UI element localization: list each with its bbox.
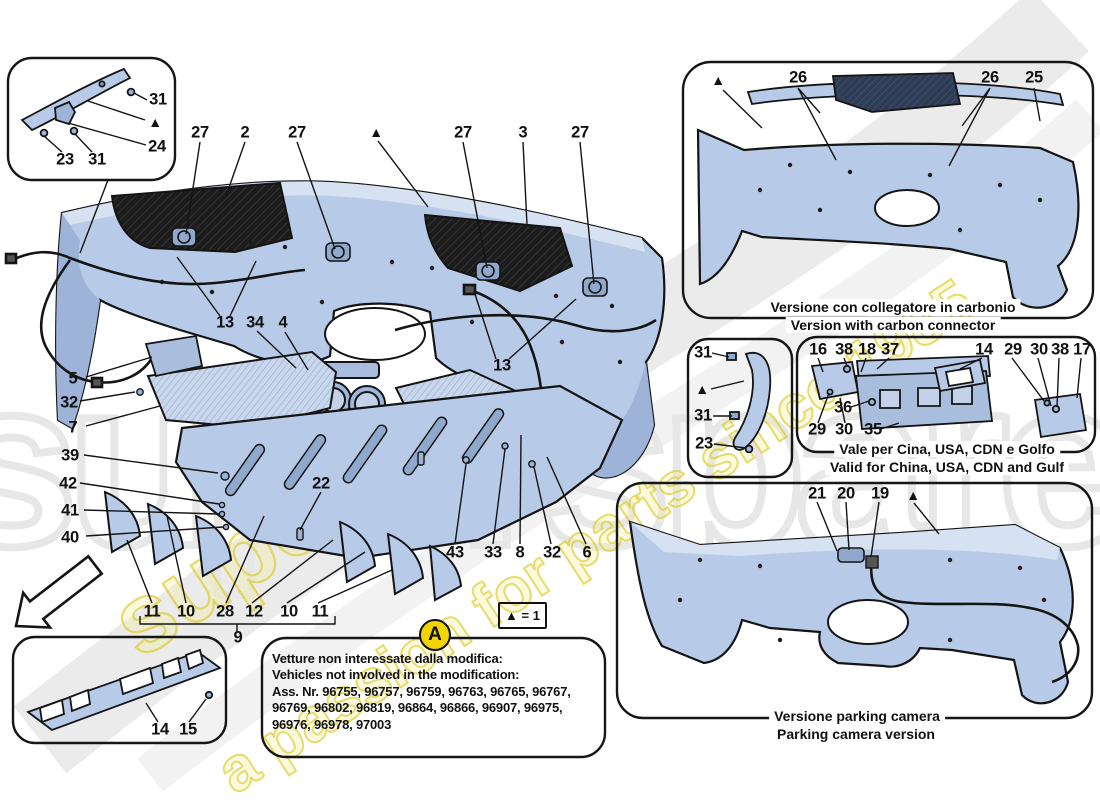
callout-label: 31	[694, 344, 712, 363]
callout-label: 42	[59, 475, 77, 494]
caption-parking-en: Parking camera version	[772, 726, 940, 742]
callout-label: 10	[280, 603, 298, 622]
callout-label: 16	[809, 341, 827, 360]
caption-carbon-it: Versione con collegatore in carbonio	[765, 299, 1020, 315]
grille-left	[112, 183, 292, 252]
callout-label: 36	[834, 399, 852, 418]
callout-label: 20	[837, 485, 855, 504]
parking-version-part	[630, 522, 1078, 703]
callout-label: 12	[245, 603, 263, 622]
callout-label: 23	[695, 435, 713, 454]
caption-parking-it: Versione parking camera	[769, 708, 945, 724]
note-line-en: Vehicles not involved in the modificatio…	[272, 667, 602, 683]
caption-gulf-en: Valid for China, USA, CDN and Gulf	[825, 459, 1069, 475]
callout-label: 29	[808, 421, 826, 440]
callout-label: 22	[312, 475, 330, 494]
callout-label: 43	[446, 544, 464, 563]
callout-label: 8	[516, 544, 525, 563]
callout-label: 23	[56, 151, 74, 170]
parts-diagram-page: superspares superspares a passion for pa…	[0, 0, 1100, 800]
callout-label: 32	[543, 544, 561, 563]
triangle-marker-icon: ▲	[906, 487, 920, 503]
callout-label: 27	[288, 124, 306, 143]
callout-label: 24	[148, 138, 166, 157]
callout-label: 32	[60, 394, 78, 413]
callout-label: 2	[241, 124, 250, 143]
callout-label: 15	[179, 721, 197, 740]
callout-label: 26	[981, 69, 999, 88]
callout-label: 28	[216, 603, 234, 622]
note-line-it: Vetture non interessate dalla modifica:	[272, 651, 602, 667]
callout-label: 11	[312, 603, 329, 622]
callout-label: 27	[191, 124, 209, 143]
callout-label: 34	[246, 314, 264, 333]
note-line-assembly-1: Ass. Nr. 96755, 96757, 96759, 96763, 967…	[272, 684, 602, 700]
legend-box: ▲ = 1	[498, 602, 547, 629]
callout-label: 7	[69, 419, 78, 438]
callout-label: 26	[789, 69, 807, 88]
callout-label: 29	[1004, 341, 1022, 360]
callout-label: 38	[835, 341, 853, 360]
triangle-marker-icon: ▲	[695, 381, 709, 397]
callout-label: 13	[493, 357, 511, 376]
callout-label: 38	[1051, 341, 1069, 360]
note-line-assembly-3: 96976, 96978, 97003	[272, 717, 602, 733]
note-line-assembly-2: 96769, 96802, 96819, 96864, 96866, 96907…	[272, 700, 602, 716]
note-marker-a: A	[419, 619, 451, 651]
callout-label: 40	[61, 529, 79, 548]
callout-label: 31	[694, 407, 712, 426]
callout-label: 10	[177, 603, 195, 622]
callout-label: 14	[975, 341, 993, 360]
callout-label: 9	[234, 629, 243, 648]
callout-label: 39	[61, 447, 79, 466]
callout-label: 13	[216, 314, 234, 333]
triangle-marker-icon: ▲	[711, 72, 725, 88]
callout-label: 31	[149, 91, 167, 110]
callout-label: 35	[864, 421, 882, 440]
callout-label: 5	[69, 370, 78, 389]
callout-label: 3	[519, 124, 528, 143]
caption-carbon-en: Version with carbon connector	[786, 317, 1001, 333]
callout-label: 19	[871, 485, 889, 504]
callout-label: 33	[484, 544, 502, 563]
callout-label: 25	[1025, 69, 1043, 88]
callout-label: 37	[881, 341, 899, 360]
callout-label: 31	[88, 151, 106, 170]
triangle-marker-icon: ▲	[369, 124, 383, 140]
callout-label: 11	[144, 603, 161, 622]
caption-gulf-it: Vale per Cina, USA, CDN e Golfo	[834, 441, 1060, 457]
callout-label: 27	[571, 124, 589, 143]
callout-label: 6	[583, 544, 592, 563]
callout-label: 21	[808, 485, 826, 504]
callout-label: 18	[858, 341, 876, 360]
note-marker-letter: A	[428, 624, 442, 646]
note-box-text: Vetture non interessate dalla modifica: …	[272, 651, 602, 733]
triangle-marker-icon: ▲	[148, 114, 162, 130]
legend-text: ▲ = 1	[505, 608, 540, 623]
callout-label: 27	[454, 124, 472, 143]
callout-label: 17	[1073, 341, 1091, 360]
callout-label: 30	[1030, 341, 1048, 360]
callout-label: 30	[835, 421, 853, 440]
callout-label: 14	[151, 721, 169, 740]
callout-label: 4	[279, 314, 288, 333]
callout-label: 41	[61, 502, 79, 521]
